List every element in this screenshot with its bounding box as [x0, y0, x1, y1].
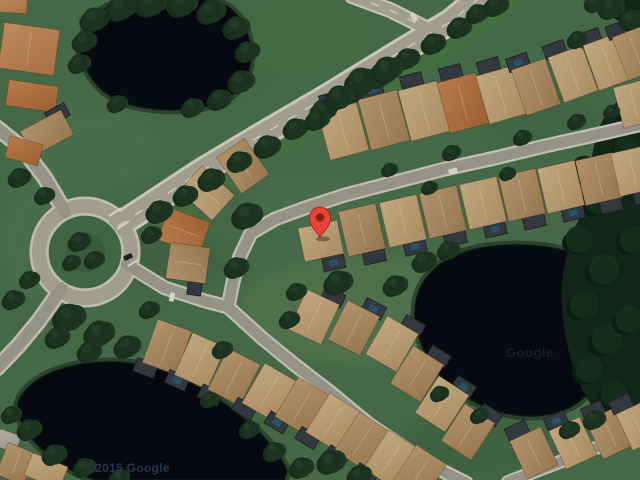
pin-shadow	[316, 237, 330, 242]
satellite-map-canvas[interactable]	[0, 0, 640, 480]
pin-dot	[316, 213, 324, 221]
satellite-map[interactable]: ©2015 Google Google	[0, 0, 640, 480]
